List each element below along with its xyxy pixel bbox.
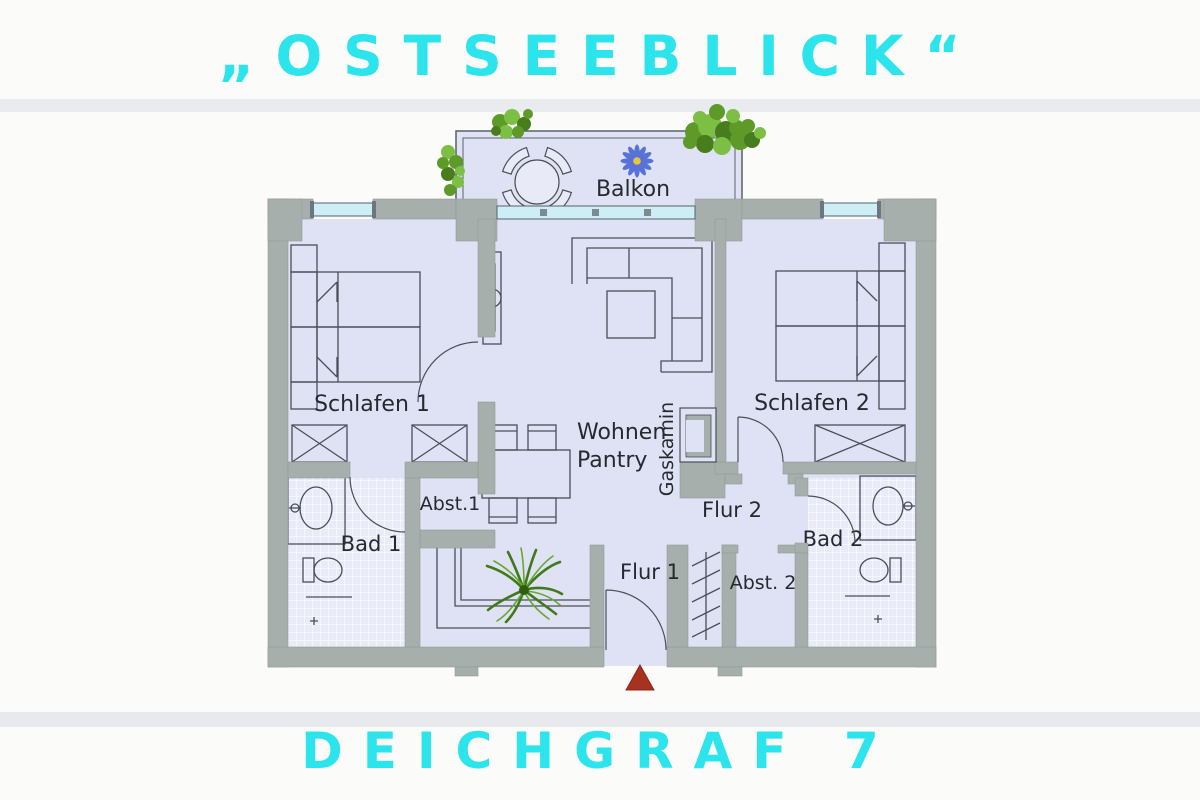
bathroom1-tiled-floor (288, 478, 405, 647)
bedroom1-label: Schlafen 1 (314, 392, 430, 417)
living-label-line1: Wohnen (577, 420, 666, 445)
hall2-label: Flur 2 (702, 498, 762, 522)
hall1-label: Flur 1 (620, 560, 680, 584)
fireplace-label: Gaskamin (656, 402, 678, 496)
entrance-marker-icon (626, 665, 654, 690)
balcony-door-icon (497, 206, 695, 219)
bathroom2-label: Bad 2 (803, 527, 864, 551)
bedroom2-label: Schlafen 2 (754, 391, 870, 416)
window-icon (820, 201, 881, 218)
bathroom2-tiled-floor (808, 478, 916, 647)
building-title: DEICHGRAF 7 (0, 722, 1200, 780)
balcony-label: Balkon (596, 177, 670, 202)
bathroom1-label: Bad 1 (341, 532, 402, 556)
storage1-label: Abst.1 (420, 493, 481, 515)
floorplan-page: „OSTSEEBLICK“ (0, 0, 1200, 800)
floor-plan: Balkon (0, 0, 1200, 800)
storage2-label: Abst. 2 (730, 572, 797, 594)
gas-fireplace-icon (680, 408, 716, 462)
living-label-line2: Pantry (577, 448, 647, 473)
window-icon (310, 201, 376, 218)
